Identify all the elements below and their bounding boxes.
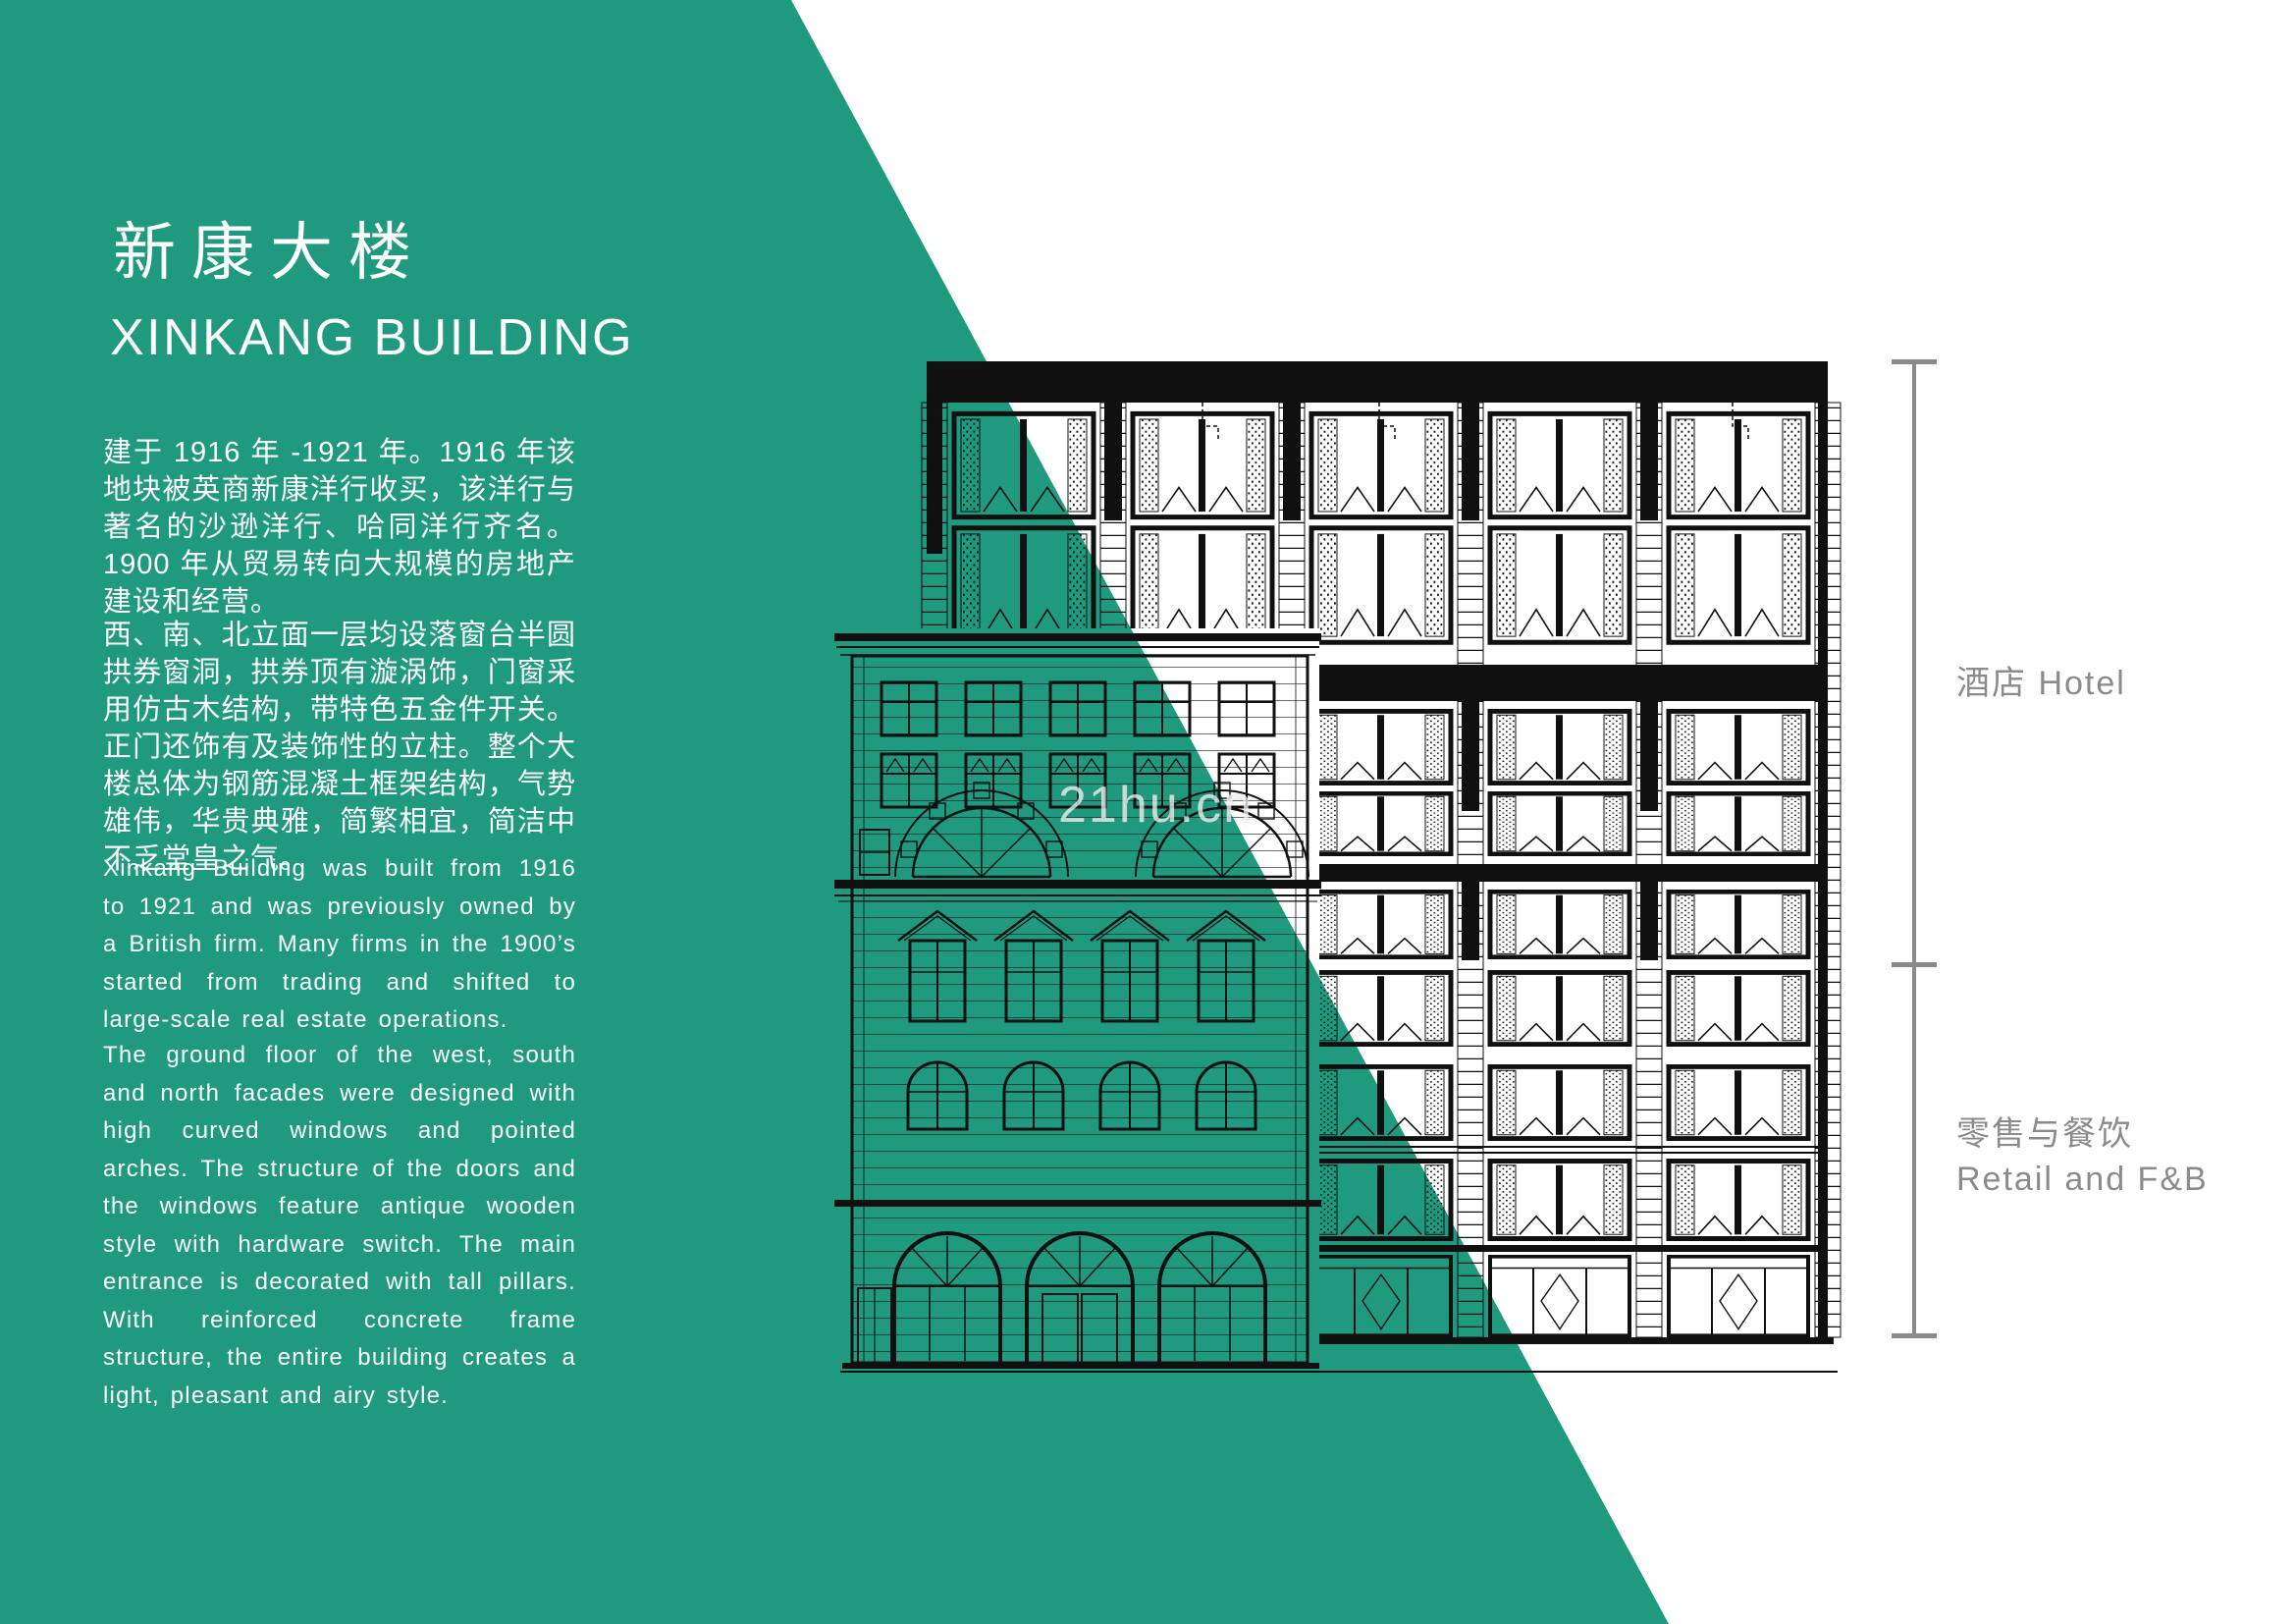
page-title-zh: 新康大楼 [113, 218, 427, 287]
brochure-page: 21hu.cn 新康大楼 XINKANG BUILDING 建于 1916 年 … [0, 0, 2296, 1624]
paragraph-zh-2: 西、南、北立面一层均设落窗台半圆拱券窗洞，拱券顶有漩涡饰，门窗采用仿古木结构，带… [103, 617, 576, 878]
dimension-tick-top [1892, 359, 1937, 364]
dimension-tick-bottom [1892, 1333, 1937, 1338]
dimension-line [1912, 359, 1916, 1338]
paragraph-en-1: Xinkang Building was built from 1916 to … [103, 850, 576, 1040]
label-hotel: 酒店 Hotel [1956, 656, 2126, 704]
paragraph-zh-1: 建于 1916 年 -1921 年。1916 年该地块被英商新康洋行收买，该洋行… [103, 434, 576, 621]
watermark: 21hu.cn [1058, 776, 1254, 835]
label-retail: 零售与餐饮 Retail and F&B [1956, 1111, 2209, 1202]
paragraph-en-2: The ground floor of the west, south and … [103, 1037, 576, 1415]
label-retail-en: Retail and F&B [1956, 1157, 2209, 1202]
label-retail-zh: 零售与餐饮 [1956, 1111, 2209, 1157]
dimension-tick-middle [1892, 962, 1937, 967]
page-title-en: XINKANG BUILDING [110, 310, 634, 366]
